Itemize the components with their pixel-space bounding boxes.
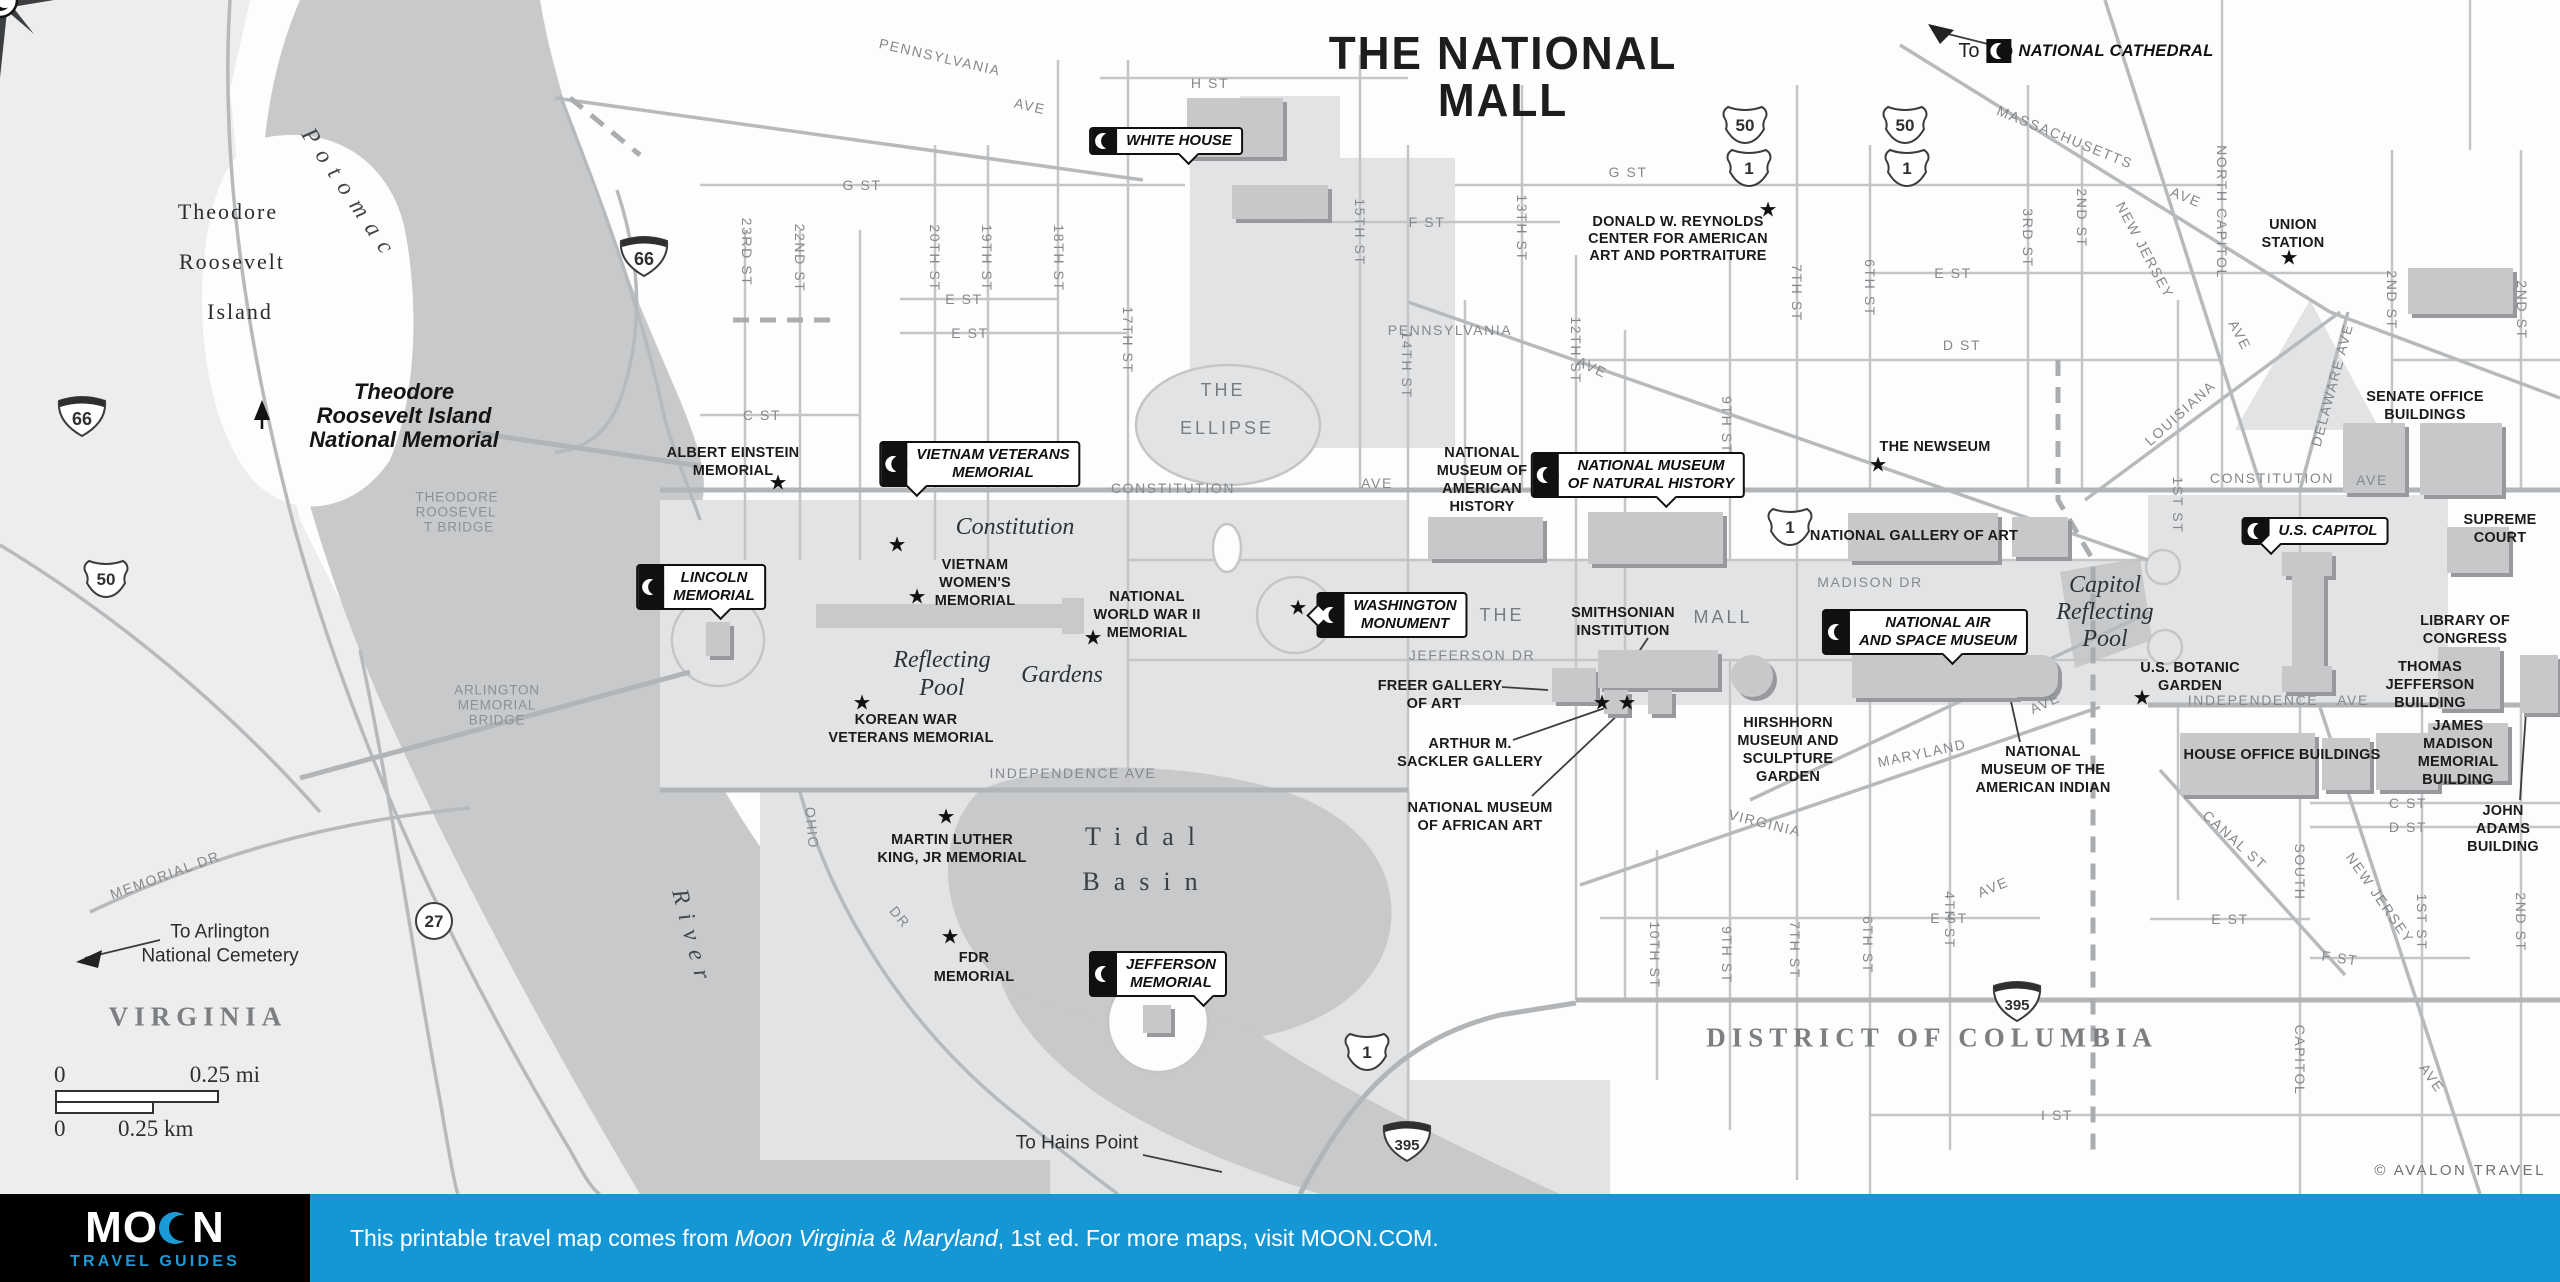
book-title: Moon Virginia & Maryland	[735, 1225, 998, 1251]
poi-label-madison: MADISON	[2423, 737, 2493, 752]
street-label-capitol: CAPITOL	[2293, 1025, 2307, 1096]
street-label-g-st: G ST	[1608, 165, 1647, 179]
park-label-pool: Pool	[919, 676, 964, 700]
memorial-label-national-memorial: National Memorial	[309, 429, 498, 451]
street-label-2nd-st: 2ND ST	[2075, 188, 2089, 247]
poi-label-art-and-portraiture: ART AND PORTRAITURE	[1589, 249, 1766, 264]
island-label-roosevelt: Roosevelt	[179, 251, 285, 273]
moon-icon	[1533, 454, 1559, 496]
street-label-north-capitol: NORTH CAPITOL	[2215, 145, 2229, 279]
street-label-22nd-st: 22ND ST	[793, 224, 807, 293]
poi-label-smithsonian: SMITHSONIAN	[1571, 606, 1675, 621]
poi-label-world-war-ii: WORLD WAR II	[1093, 608, 1200, 623]
moon-logo: MON TRAVEL GUIDES	[0, 1194, 310, 1282]
bridge-label-t-bridge: T BRIDGE	[424, 520, 494, 534]
street-label-h-st: H ST	[1191, 76, 1229, 90]
poi-star-icon: ★	[2133, 686, 2152, 711]
poi-label-building: BUILDING	[2394, 696, 2466, 711]
poi-label-building: BUILDING	[2467, 840, 2539, 855]
poi-star-icon: ★	[908, 585, 927, 610]
street-label-independence: INDEPENDENCE	[2188, 693, 2318, 707]
poi-label-of-african-art: OF AFRICAN ART	[1418, 819, 1543, 834]
moon-icon	[1091, 129, 1117, 153]
poi-label-union: UNION	[2269, 218, 2317, 233]
poi-label-garden: GARDEN	[2158, 679, 2222, 694]
callout-lincoln-memorial: LINCOLNMEMORIAL	[636, 564, 766, 610]
svg-text:50: 50	[1736, 116, 1755, 135]
poi-label-library-of: LIBRARY OF	[2420, 614, 2510, 629]
moon-crescent-icon	[159, 1212, 191, 1244]
poi-label-museum-and: MUSEUM AND	[1737, 734, 1838, 749]
park-label-reflecting: Reflecting	[2056, 600, 2153, 624]
street-label-1st-st: 1ST ST	[2415, 894, 2429, 951]
area-street-label-the: THE	[1201, 381, 1246, 399]
poi-label-the-newseum: THE NEWSEUM	[1880, 440, 1991, 455]
poi-label-building: BUILDING	[2422, 773, 2494, 788]
footer-text: This printable travel map comes from Moo…	[350, 1194, 1439, 1282]
callout-text: JEFFERSONMEMORIAL	[1117, 953, 1225, 995]
callout-text: WHITE HOUSE	[1117, 129, 1241, 153]
poi-label-women-s: WOMEN'S	[939, 576, 1011, 591]
street-label-i-st: I ST	[2041, 1108, 2073, 1122]
street-label-constitution: CONSTITUTION	[2210, 471, 2334, 485]
street-label-ave: AVE	[2337, 693, 2369, 707]
poi-star-icon: ★	[941, 925, 960, 950]
callout-washington-monument: WASHINGTONMONUMENT	[1316, 592, 1467, 638]
street-label-10th-st: 10TH ST	[1648, 921, 1662, 988]
poi-label-veterans-memorial: VETERANS MEMORIAL	[828, 731, 993, 746]
scale-mi-label: 0.25 mi	[190, 1062, 260, 1088]
bridge-label-theodore: THEODORE	[416, 490, 499, 504]
callout-text: VIETNAM VETERANSMEMORIAL	[907, 443, 1078, 485]
poi-label-american-indian: AMERICAN INDIAN	[1975, 781, 2110, 796]
callout-vietnam-veterans-memorial: VIETNAM VETERANSMEMORIAL	[879, 441, 1080, 487]
water-label-basin: Basin	[1082, 869, 1211, 895]
park-label-constitution: Constitution	[956, 515, 1075, 539]
bridge-label-bridge: BRIDGE	[469, 713, 526, 727]
callout-national-air-and-space-museum: NATIONAL AIRAND SPACE MUSEUM	[1822, 609, 2028, 655]
poi-label-memorial: MEMORIAL	[693, 464, 774, 479]
poi-label-supreme: SUPREME	[2463, 513, 2536, 528]
memorial-label-roosevelt-island: Roosevelt Island	[317, 405, 492, 427]
poi-star-icon: ★	[1618, 691, 1637, 716]
poi-label-sculpture: SCULPTURE	[1743, 752, 1833, 767]
poi-label-james: JAMES	[2433, 719, 2484, 734]
poi-label-memorial: MEMORIAL	[934, 970, 1015, 985]
street-label-20th-st: 20TH ST	[928, 224, 942, 291]
svg-text:66: 66	[72, 409, 92, 429]
callout-text: NATIONAL AIRAND SPACE MUSEUM	[1850, 611, 2026, 653]
direction-label-to-arlington: To Arlington	[170, 923, 269, 942]
moon-icon	[881, 443, 907, 485]
poi-star-icon: ★	[769, 471, 788, 496]
street-label-constitution: CONSTITUTION	[1111, 481, 1235, 495]
poi-label-of-art: OF ART	[1407, 697, 1462, 712]
street-label-ohio: OHIO	[803, 806, 821, 849]
region-label-virginia: VIRGINIA	[109, 1004, 288, 1031]
poi-star-icon: ★	[1289, 596, 1308, 621]
map-title: THE NATIONAL MALL	[1329, 30, 1677, 124]
poi-label-museum-of-the: MUSEUM OF THE	[1981, 763, 2105, 778]
callout-national-museum-of-natural-history: NATIONAL MUSEUMOF NATURAL HISTORY	[1531, 452, 1745, 498]
svg-text:66: 66	[634, 249, 654, 269]
poi-label-american: AMERICAN	[1442, 482, 1522, 497]
street-label-9th-st: 9TH ST	[1720, 926, 1734, 984]
street-label-madison-dr: MADISON DR	[1817, 575, 1922, 589]
poi-label-national-gallery-of-art: NATIONAL GALLERY OF ART	[1810, 529, 2018, 544]
poi-label-court: COURT	[2474, 531, 2527, 546]
street-label-2nd-st: 2ND ST	[2385, 270, 2399, 329]
poi-label-martin-luther: MARTIN LUTHER	[891, 833, 1013, 848]
direction-label-national-cemetery: National Cemetery	[141, 947, 298, 966]
poi-label-history: HISTORY	[1449, 500, 1514, 515]
map-graphic	[0, 0, 2560, 1194]
poi-label-king-jr-memorial: KING, JR MEMORIAL	[877, 851, 1026, 866]
island-label-theodore: Theodore	[178, 201, 278, 223]
street-label-15th-st: 15TH ST	[1353, 198, 1367, 265]
island-label-island: Island	[207, 301, 273, 323]
callout-text: LINCOLNMEMORIAL	[664, 566, 764, 608]
street-label-6th-st: 6TH ST	[1861, 916, 1875, 974]
callout-text: NATIONAL MUSEUMOF NATURAL HISTORY	[1559, 454, 1743, 496]
bridge-label-arlington: ARLINGTON	[454, 683, 540, 697]
svg-text:50: 50	[1896, 116, 1915, 135]
street-label-2nd-st: 2ND ST	[2515, 280, 2529, 339]
scale-km-zero: 0	[54, 1116, 66, 1142]
park-label-pool: Pool	[2082, 627, 2127, 651]
poi-label-freer-gallery: FREER GALLERY	[1378, 679, 1503, 694]
svg-text:27: 27	[425, 912, 444, 931]
poi-label-house-office-buildings: HOUSE OFFICE BUILDINGS	[2184, 748, 2381, 763]
poi-label-national-museum: NATIONAL MUSEUM	[1407, 801, 1552, 816]
street-label-7th-st: 7TH ST	[1790, 264, 1804, 322]
street-label-e-st: E ST	[951, 326, 989, 340]
street-label-1st-st: 1ST ST	[2171, 477, 2185, 534]
svg-text:50: 50	[97, 570, 116, 589]
poi-label-albert-einstein: ALBERT EINSTEIN	[667, 446, 800, 461]
to-national-cathedral-note: To NATIONAL CATHEDRAL	[1958, 39, 2213, 63]
street-label-g-st: G ST	[842, 178, 881, 192]
moon-logo-word: MON	[85, 1206, 225, 1250]
poi-label-congress: CONGRESS	[2423, 632, 2508, 647]
poi-label-center-for-american: CENTER FOR AMERICAN	[1588, 232, 1768, 247]
water-label-tidal: Tidal	[1085, 824, 1209, 850]
street-label-3rd-st: 3RD ST	[2021, 208, 2035, 267]
street-label-jefferson-dr: JEFFERSON DR	[1409, 648, 1536, 662]
poi-label-donald-w-reynolds: DONALD W. REYNOLDS	[1592, 215, 1763, 230]
area-street-label-mall: MALL	[1693, 608, 1752, 626]
street-label-2nd-st: 2ND ST	[2514, 892, 2528, 951]
street-label-14th-st: 14TH ST	[1400, 331, 1414, 398]
poi-star-icon: ★	[937, 805, 956, 830]
scale-mi-zero: 0	[54, 1062, 66, 1088]
callout-text: WASHINGTONMONUMENT	[1344, 594, 1465, 636]
street-label-9th-st: 9TH ST	[1720, 396, 1734, 454]
poi-label-institution: INSTITUTION	[1576, 624, 1669, 639]
callout-white-house: WHITE HOUSE	[1089, 127, 1243, 155]
street-label-19th-st: 19TH ST	[980, 224, 994, 291]
poi-label-national: NATIONAL	[2005, 745, 2080, 760]
callout-jefferson-memorial: JEFFERSONMEMORIAL	[1089, 951, 1227, 997]
svg-text:395: 395	[2004, 997, 2029, 1014]
national-mall-map: THE NATIONAL MALL To NATIONAL CATHEDRAL …	[0, 0, 2560, 1194]
poi-label-adams: ADAMS	[2476, 822, 2530, 837]
poi-label-vietnam: VIETNAM	[942, 558, 1009, 573]
bridge-label-roosevel: ROOSEVEL	[416, 505, 497, 519]
moon-icon	[1824, 611, 1850, 653]
poi-label-garden: GARDEN	[1756, 770, 1820, 785]
street-label-c-st: C ST	[743, 408, 781, 422]
poi-label-sackler-gallery: SACKLER GALLERY	[1397, 755, 1543, 770]
poi-label-memorial: MEMORIAL	[2418, 755, 2499, 770]
poi-star-icon: ★	[1869, 453, 1888, 478]
street-label-13th-st: 13TH ST	[1515, 194, 1529, 261]
park-label-reflecting: Reflecting	[893, 648, 990, 672]
poi-label-national: NATIONAL	[1444, 446, 1519, 461]
poi-label-national: NATIONAL	[1109, 590, 1184, 605]
poi-label-fdr: FDR	[959, 951, 989, 966]
direction-label-to-hains-point: To Hains Point	[1016, 1134, 1139, 1153]
copyright-credit: © AVALON TRAVEL	[2374, 1162, 2546, 1179]
street-label-ave: AVE	[1361, 476, 1393, 490]
map-page: THE NATIONAL MALL To NATIONAL CATHEDRAL …	[0, 0, 2560, 1282]
street-label-ave: AVE	[2356, 473, 2388, 487]
poi-star-icon: ★	[1593, 691, 1612, 716]
national-cathedral-label: NATIONAL CATHEDRAL	[2018, 42, 2213, 61]
poi-label-memorial: MEMORIAL	[1107, 626, 1188, 641]
area-street-label-ellipse: ELLIPSE	[1180, 419, 1274, 437]
moon-icon	[1091, 953, 1117, 995]
street-label-independence-ave: INDEPENDENCE AVE	[990, 766, 1157, 780]
street-label-south: SOUTH	[2293, 844, 2307, 901]
street-label-d-st: D ST	[1943, 338, 1981, 352]
poi-star-icon: ★	[2280, 246, 2299, 271]
poi-label-u-s-botanic: U.S. BOTANIC	[2140, 661, 2240, 676]
bridge-label-memorial: MEMORIAL	[458, 698, 536, 712]
svg-text:1: 1	[1902, 159, 1911, 178]
svg-text:1: 1	[1785, 518, 1794, 537]
callout-us-capitol: U.S. CAPITOL	[2242, 517, 2389, 545]
memorial-label-theodore: Theodore	[354, 381, 454, 403]
footer-bar: MON TRAVEL GUIDES This printable travel …	[0, 1194, 2560, 1282]
street-label-23rd-st: 23RD ST	[740, 218, 754, 287]
svg-text:1: 1	[1744, 159, 1753, 178]
area-street-label-the: THE	[1480, 606, 1525, 624]
poi-label-john: JOHN	[2482, 804, 2523, 819]
callout-text: U.S. CAPITOL	[2270, 519, 2387, 543]
street-label-18th-st: 18TH ST	[1052, 224, 1066, 291]
svg-text:1: 1	[1362, 1043, 1371, 1062]
poi-label-memorial: MEMORIAL	[935, 594, 1016, 609]
poi-label-jefferson: JEFFERSON	[2386, 678, 2475, 693]
poi-star-icon: ★	[888, 533, 907, 558]
street-label-17th-st: 17TH ST	[1121, 306, 1135, 373]
street-label-e-st: E ST	[1934, 266, 1972, 280]
street-label-6th-st: 6TH ST	[1863, 259, 1877, 317]
street-label-7th-st: 7TH ST	[1788, 921, 1802, 979]
to-label: To	[1958, 40, 1979, 63]
street-label-f-st: F ST	[1409, 215, 1446, 229]
street-label-12th-st: 12TH ST	[1569, 316, 1583, 383]
poi-label-arthur-m: ARTHUR M.	[1428, 737, 1511, 752]
poi-star-icon: ★	[1759, 198, 1778, 223]
scale-km-label: 0.25 km	[118, 1116, 193, 1142]
moon-icon	[638, 566, 664, 608]
svg-text:395: 395	[1394, 1137, 1419, 1154]
street-label-pennsylvania: PENNSYLVANIA	[1388, 323, 1513, 337]
park-label-capitol: Capitol	[2069, 573, 2141, 597]
poi-star-icon: ★	[1084, 626, 1103, 651]
scale-bar: 0 0.25 mi 0 0.25 km	[40, 1062, 260, 1140]
scale-km-bar	[55, 1101, 154, 1114]
poi-label-thomas: THOMAS	[2398, 660, 2462, 675]
street-label-4th-st: 4TH ST	[1943, 891, 1957, 949]
street-label-c-st: C ST	[2389, 796, 2427, 810]
street-label-e-st: E ST	[2211, 912, 2249, 926]
poi-label-buildings: BUILDINGS	[2384, 408, 2466, 423]
region-label-district-of-columbia: DISTRICT OF COLUMBIA	[1706, 1025, 2158, 1052]
poi-label-hirshhorn: HIRSHHORN	[1743, 716, 1833, 731]
park-label-gardens: Gardens	[1021, 663, 1103, 687]
poi-star-icon: ★	[853, 691, 872, 716]
poi-label-senate-office: SENATE OFFICE	[2366, 390, 2484, 405]
poi-label-museum-of: MUSEUM OF	[1437, 464, 1527, 479]
street-label-d-st: D ST	[2389, 820, 2427, 834]
moon-logo-subtitle: TRAVEL GUIDES	[70, 1253, 240, 1271]
moon-icon	[1986, 39, 2011, 63]
street-label-e-st: E ST	[945, 292, 983, 306]
compass-rose-icon	[0, 0, 60, 80]
